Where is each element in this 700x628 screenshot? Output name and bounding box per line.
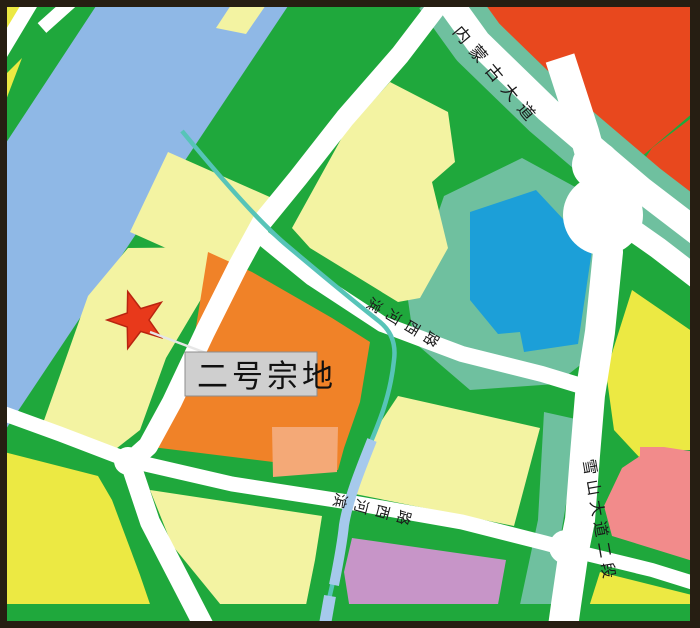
parcel-map: 二号宗地 内蒙古大道 滨河西路 滨河西路 雪山大道二段 bbox=[0, 0, 700, 628]
greenbelt-bottom-band bbox=[4, 604, 696, 622]
road-junction-south bbox=[549, 530, 583, 564]
road-junction-west bbox=[114, 447, 142, 475]
map-canvas: 二号宗地 内蒙古大道 滨河西路 滨河西路 雪山大道二段 bbox=[0, 0, 700, 628]
parcel-label-text: 二号宗地 bbox=[197, 359, 337, 394]
parcel-salmon-inset bbox=[272, 427, 338, 477]
road-interchange-blob-2 bbox=[572, 141, 620, 189]
